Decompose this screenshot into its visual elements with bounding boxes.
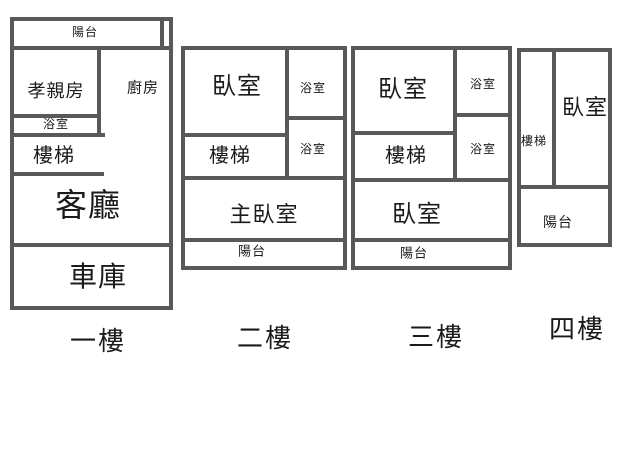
- garage-label-first-floor: 車庫: [69, 263, 127, 291]
- stairs-label-first-floor: 樓梯: [33, 146, 75, 166]
- stairs-label-fourth-floor: 樓梯: [521, 135, 547, 147]
- wall-segment-fourth-floor: [608, 48, 612, 247]
- floor-plan-diagram: 陽台孝親房廚房浴室樓梯客廳車庫一樓臥室浴室樓梯浴室主臥室陽台二樓臥室浴室樓梯浴室…: [0, 0, 640, 462]
- wall-segment-third-floor: [351, 238, 512, 242]
- wall-segment-second-floor: [181, 266, 347, 270]
- wall-segment-second-floor: [181, 46, 185, 270]
- wall-segment-fourth-floor: [517, 185, 612, 189]
- wall-segment-third-floor: [351, 46, 355, 270]
- bathroom-label-first-floor: 浴室: [43, 118, 69, 130]
- wall-segment-second-floor: [289, 116, 347, 120]
- bedroom-label-fourth-floor: 臥室: [562, 97, 608, 119]
- wall-segment-third-floor: [351, 46, 512, 50]
- wall-segment-fourth-floor: [517, 48, 612, 52]
- third-floor-title: 三樓: [408, 324, 464, 350]
- wall-segment-second-floor: [181, 176, 347, 180]
- second-floor-title: 二樓: [237, 325, 293, 351]
- wall-segment-second-floor: [343, 46, 347, 270]
- balcony-label-second-floor: 陽台: [238, 245, 266, 258]
- wall-segment-third-floor: [351, 266, 512, 270]
- master-bedroom-label-second-floor: 主臥室: [229, 204, 298, 226]
- wall-segment-second-floor: [181, 133, 289, 137]
- wall-segment-first-floor: [10, 172, 104, 176]
- wall-segment-third-floor: [508, 46, 512, 270]
- bedroom-label-second-floor: 臥室: [212, 75, 262, 99]
- stairs-label-second-floor: 樓梯: [209, 146, 251, 166]
- wall-segment-first-floor: [97, 46, 101, 137]
- bathroom-lower-label-second-floor: 浴室: [300, 143, 326, 155]
- wall-segment-third-floor: [453, 113, 512, 117]
- wall-segment-first-floor: [10, 306, 173, 310]
- parents-room-label-first-floor: 孝親房: [28, 82, 85, 100]
- wall-segment-third-floor: [351, 131, 457, 135]
- wall-segment-first-floor: [10, 46, 173, 50]
- balcony-label-fourth-floor: 陽台: [543, 215, 573, 229]
- wall-segment-fourth-floor: [552, 48, 556, 187]
- wall-segment-second-floor: [181, 46, 347, 50]
- bathroom-lower-label-third-floor: 浴室: [470, 143, 496, 155]
- kitchen-label-first-floor: 廚房: [127, 81, 159, 96]
- wall-segment-second-floor: [285, 46, 289, 180]
- wall-segment-second-floor: [181, 238, 347, 242]
- wall-segment-third-floor: [351, 178, 512, 182]
- wall-segment-first-floor: [10, 243, 173, 247]
- living-room-label-first-floor: 客廳: [55, 189, 121, 221]
- fourth-floor-title: 四樓: [549, 316, 605, 342]
- wall-segment-first-floor: [10, 17, 173, 21]
- bathroom-upper-label-second-floor: 浴室: [300, 82, 326, 94]
- bathroom-upper-label-third-floor: 浴室: [470, 78, 496, 90]
- balcony-label-first-floor: 陽台: [72, 26, 98, 38]
- bedroom-upper-label-third-floor: 臥室: [378, 78, 428, 102]
- wall-segment-first-floor: [10, 17, 14, 310]
- wall-segment-first-floor: [10, 133, 105, 137]
- bedroom-lower-label-third-floor: 臥室: [392, 203, 442, 227]
- first-floor-title: 一樓: [70, 328, 126, 354]
- balcony-label-third-floor: 陽台: [400, 247, 428, 260]
- stairs-label-third-floor: 樓梯: [385, 146, 427, 166]
- wall-segment-first-floor: [169, 17, 173, 310]
- wall-segment-fourth-floor: [517, 243, 612, 247]
